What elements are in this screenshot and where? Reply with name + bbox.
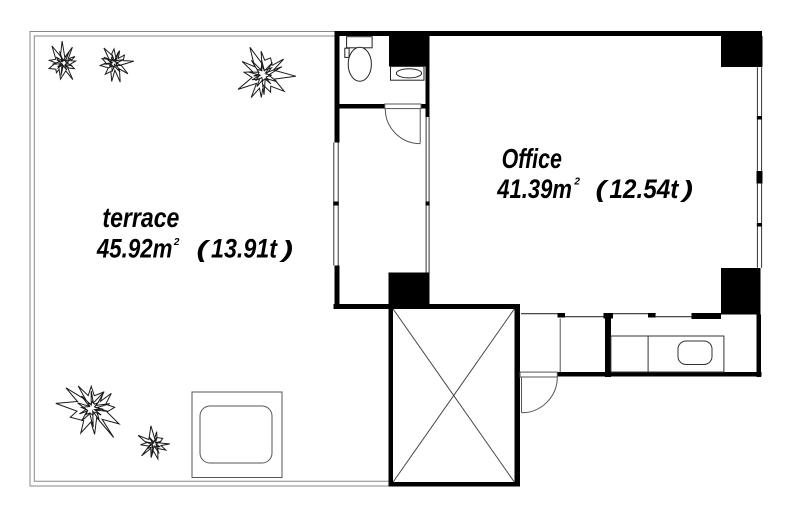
svg-text:2: 2: [573, 177, 580, 188]
svg-text:45.92m: 45.92m: [96, 234, 172, 264]
svg-text:41.39m: 41.39m: [496, 174, 572, 204]
svg-text:Office: Office: [502, 143, 562, 174]
svg-text:12.54t: 12.54t: [609, 174, 679, 204]
svg-text:13.91t: 13.91t: [211, 234, 278, 264]
svg-text:2: 2: [173, 237, 180, 248]
svg-text:terrace: terrace: [102, 202, 179, 233]
